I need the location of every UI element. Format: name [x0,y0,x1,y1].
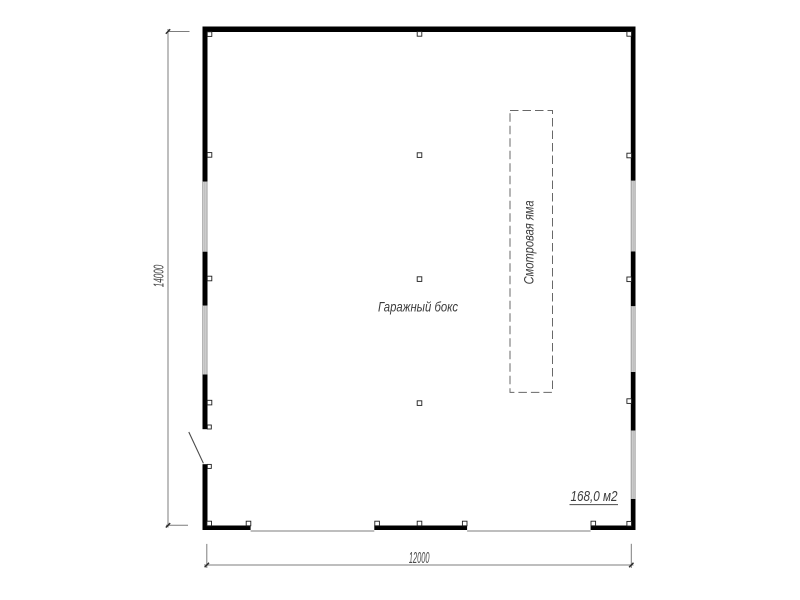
svg-text:12000: 12000 [409,550,430,567]
svg-text:Гаражный бокс: Гаражный бокс [378,298,458,314]
svg-text:168,0 м2: 168,0 м2 [571,488,619,505]
svg-text:Смотровая яма: Смотровая яма [521,200,537,284]
svg-text:14000: 14000 [150,264,167,287]
